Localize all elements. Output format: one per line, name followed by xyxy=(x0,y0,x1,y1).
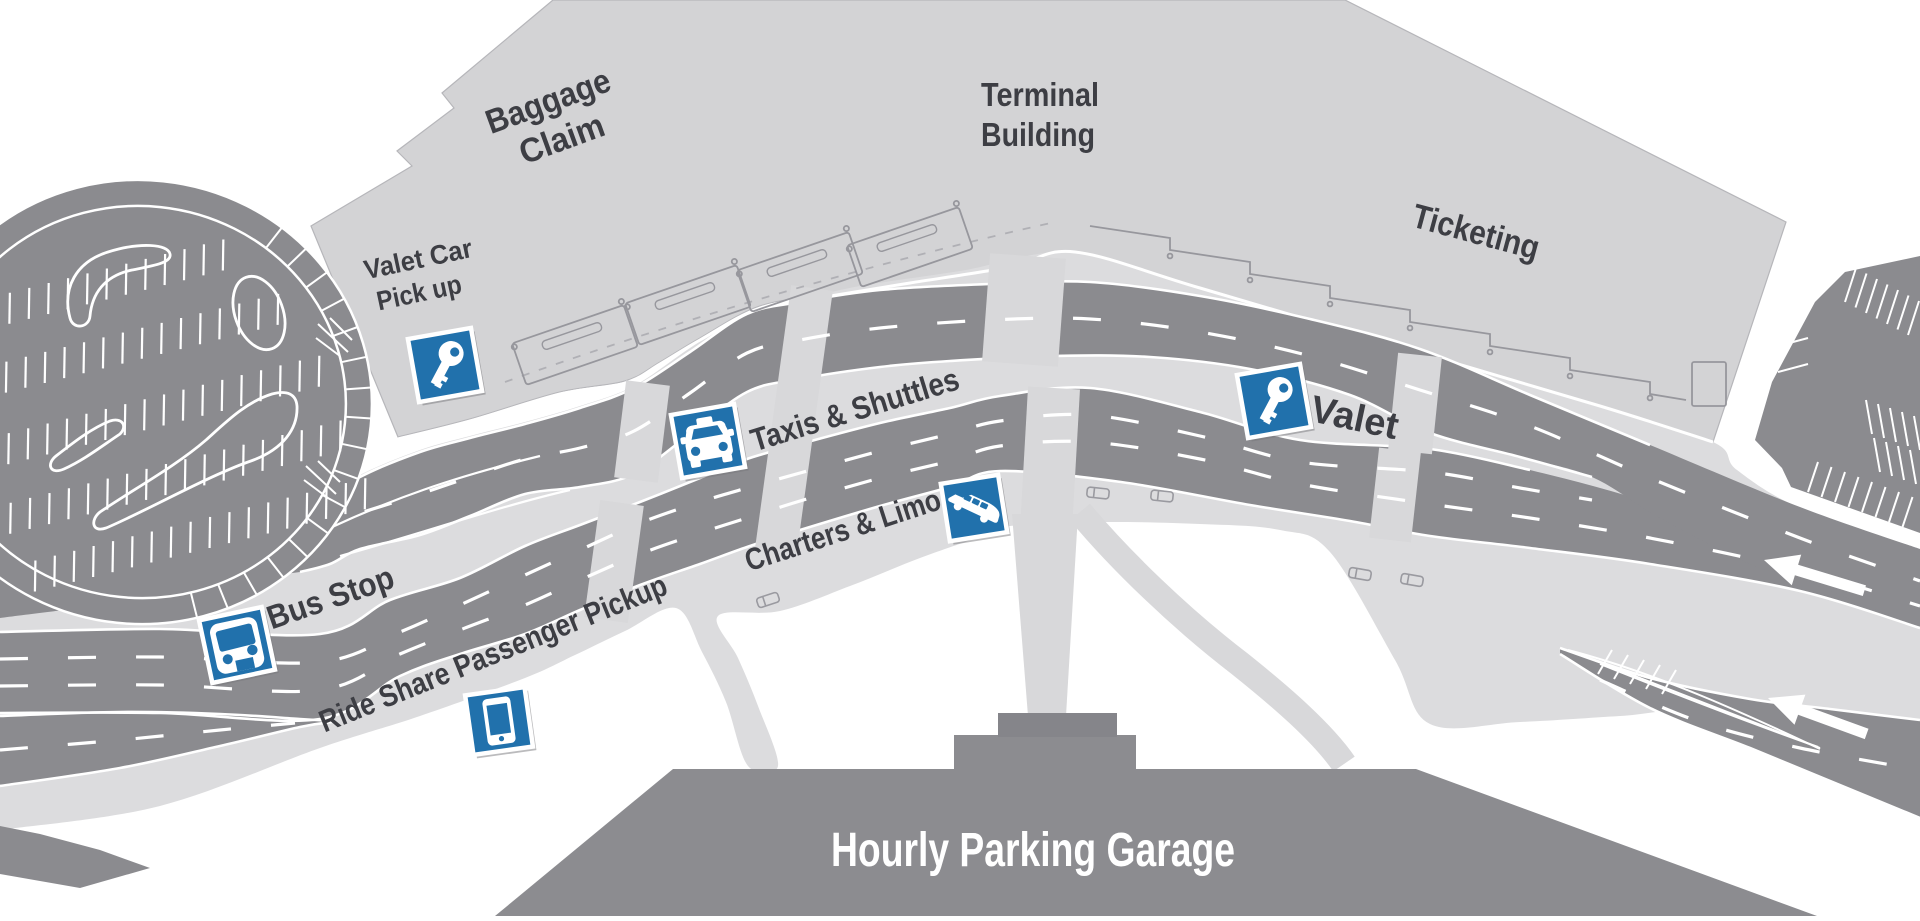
svg-text:Terminal: Terminal xyxy=(981,76,1099,113)
svg-text:Building: Building xyxy=(981,116,1095,153)
svg-text:Hourly Parking Garage: Hourly Parking Garage xyxy=(831,824,1235,877)
